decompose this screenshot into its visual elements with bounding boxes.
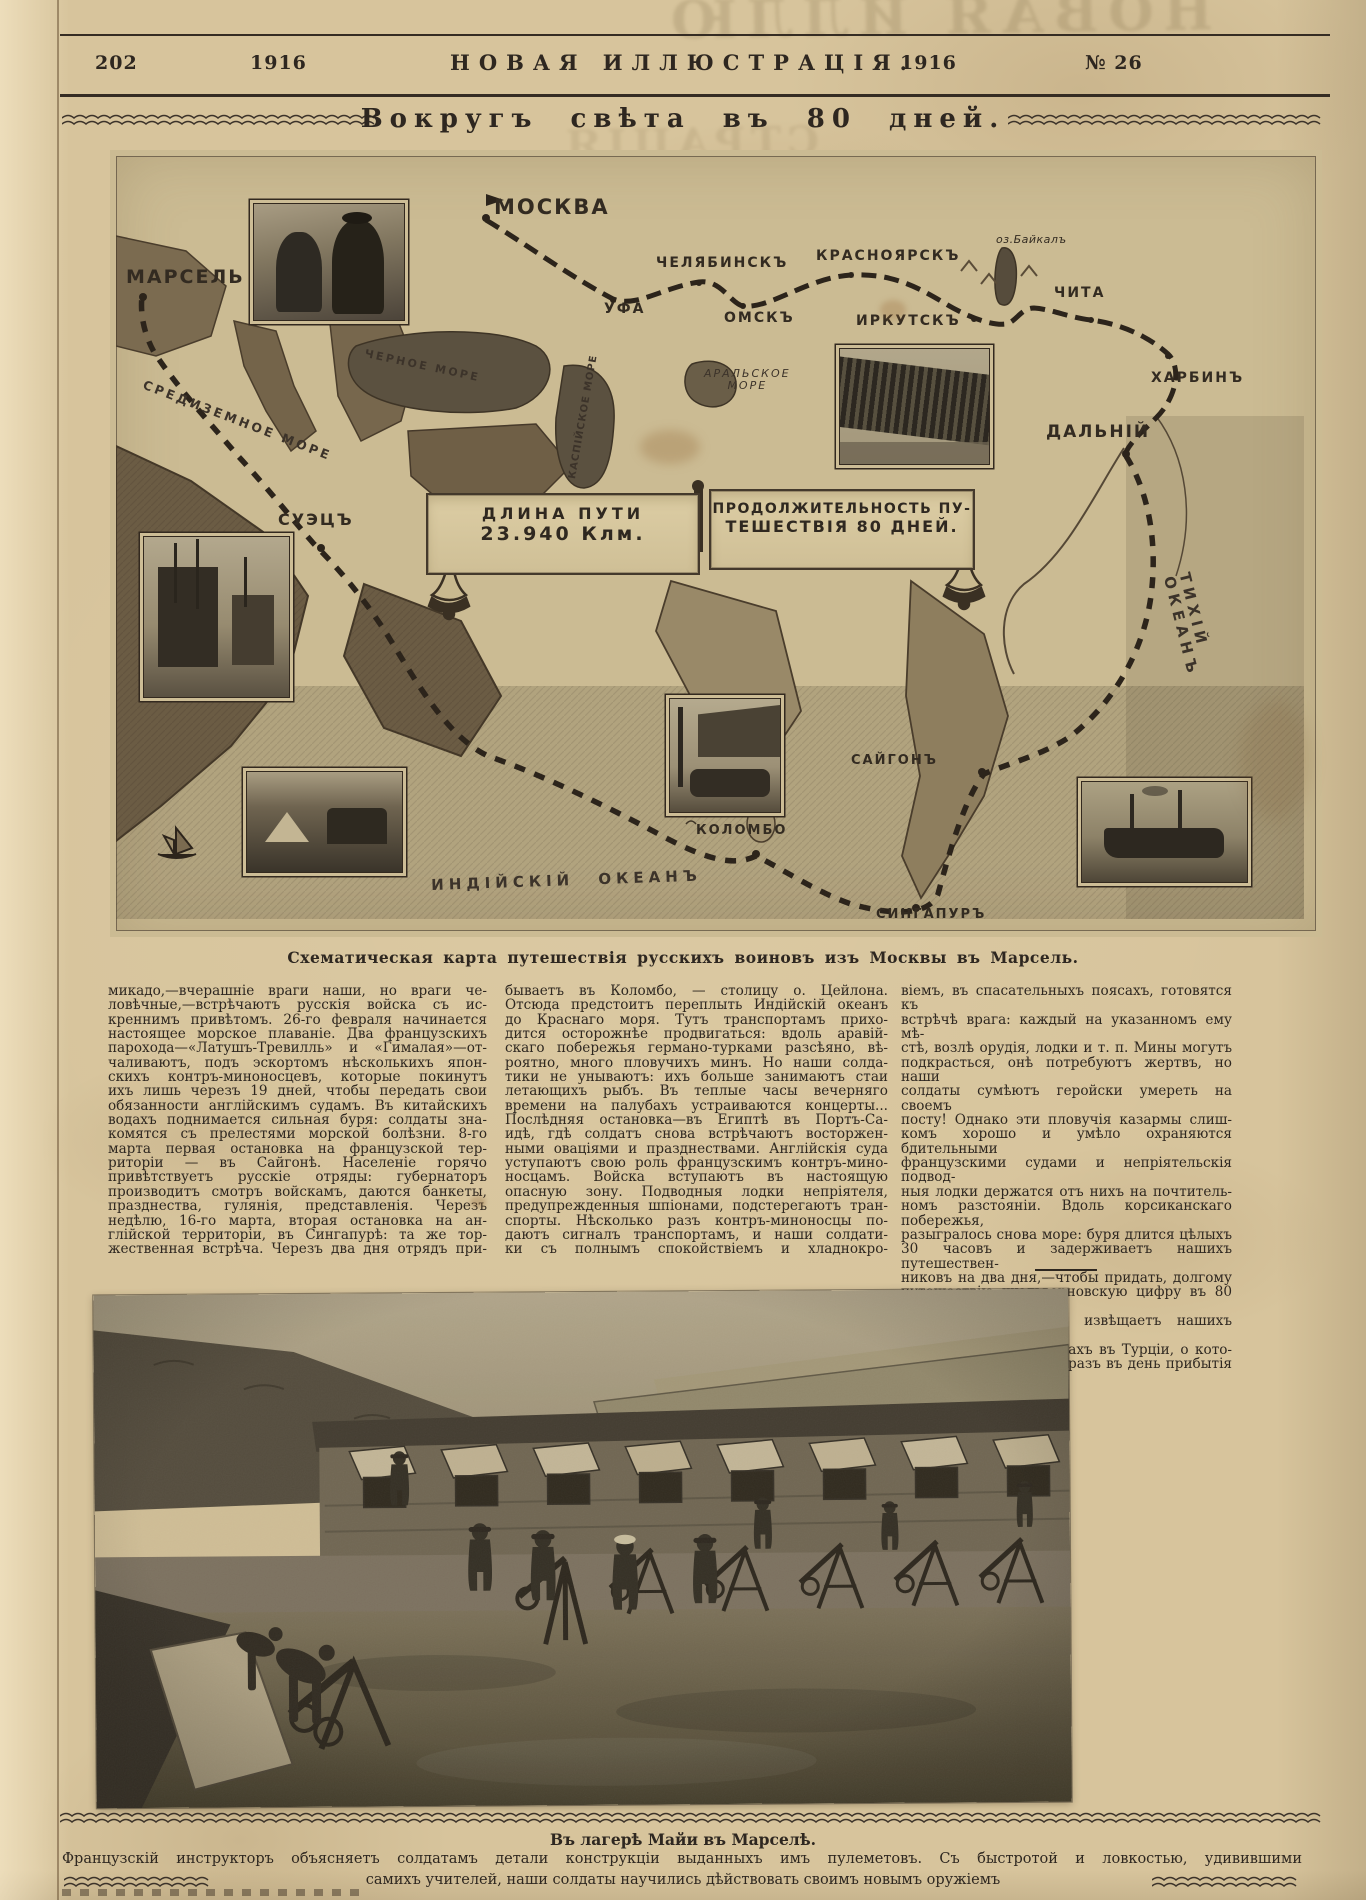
issue-number: № 26: [1085, 52, 1143, 74]
map-label-omsk: ОМСКЪ: [724, 311, 795, 326]
text-line: ными оваціями и празднествами. Англійскі…: [505, 1142, 888, 1156]
map-label-marseille: МАРСЕЛЬ: [126, 268, 245, 288]
photo-caption-line1: Французскій инструкторъ объясняетъ солда…: [62, 1851, 1302, 1867]
map-label-suez: СУЭЦЪ: [278, 512, 354, 529]
banner-length-value: 23.940 Клм.: [428, 523, 698, 545]
text-line: марта первая остановка на французской те…: [108, 1142, 487, 1156]
text-line: летающихъ рыбъ. Въ теплые часы вечерняго: [505, 1084, 888, 1098]
wavy-rule: [60, 1812, 1328, 1828]
text-line: чаливаютъ, подъ эскортомъ нѣсколькихъ яп…: [108, 1056, 487, 1070]
text-line: номъ разстояніи. Вдоль корсиканскаго поб…: [901, 1199, 1232, 1228]
map-label-moscow: МОСКВА: [494, 196, 610, 218]
map-label-krasnoyarsk: КРАСНОЯРСКЪ: [816, 249, 960, 264]
map-label-baikal: оз.Байкалъ: [996, 234, 1067, 246]
banner-route-length: ДЛИНА ПУТИ 23.940 Клм.: [426, 493, 700, 575]
text-line: віемъ, въ спасательныхъ поясахъ, готовят…: [901, 984, 1232, 1013]
camp-photo-artwork: [93, 1289, 1072, 1809]
text-line: встрѣчѣ врага: каждый на указанномъ ему …: [901, 1013, 1232, 1042]
wavy-ornament: [1008, 114, 1328, 130]
map-label-chelyabinsk: ЧЕЛЯБИНСКЪ: [656, 256, 788, 271]
text-line: спорты. Нѣсколько разъ контръ-миноносцы …: [505, 1214, 888, 1228]
map-caption: Схематическая карта путешествія русскихъ…: [0, 948, 1366, 967]
map-label-irkutsk: ИРКУТСКЪ: [856, 314, 961, 329]
text-line: ныя лодки держатся отъ нихъ на почтитель…: [901, 1185, 1232, 1199]
photo-caption-title: Въ лагерѣ Майи въ Марселѣ.: [0, 1830, 1366, 1849]
text-line: солдаты сумѣютъ геройски умереть на свое…: [901, 1084, 1232, 1113]
map-label-chita: ЧИТА: [1054, 286, 1105, 301]
text-line: посту! Однако эти пловучія казармы слиш-: [901, 1113, 1232, 1127]
text-line: ловѣчные,—встрѣчаютъ русскія войска съ и…: [108, 998, 487, 1012]
inset-photo-suez-ships: [143, 536, 290, 698]
text-line: тики не унываютъ: ихъ больше занимаютъ с…: [505, 1070, 888, 1084]
inset-photo-troop-column: [839, 348, 990, 465]
text-line: бываетъ въ Коломбо, — столицу о. Цейлона…: [505, 984, 888, 998]
text-line: французскими судами и непріятельскія под…: [901, 1156, 1232, 1185]
text-line: дится осторожнѣе продвигаться: вдоль ара…: [505, 1027, 888, 1041]
text-line: риторіи — въ Сайгонѣ. Населеніе горячо: [108, 1156, 487, 1170]
text-line: времени на палубахъ устраиваются концерт…: [505, 1099, 888, 1113]
bottom-ornament: [62, 1889, 362, 1896]
text-line: ихъ лишь черезъ 19 дней, чтобы передать …: [108, 1084, 487, 1098]
text-line: стѣ, возлѣ орудія, лодки и т. п. Мины мо…: [901, 1041, 1232, 1055]
text-line: водахъ поднимается сильная буря: солдаты…: [108, 1113, 487, 1127]
text-line: Послѣдняя остановка—въ Египтѣ въ Портъ-С…: [505, 1113, 888, 1127]
text-line: носцамъ. Войска вступаютъ въ настоящую: [505, 1170, 888, 1184]
inset-photo-officers: [253, 203, 405, 321]
text-line: парохода—«Латушъ-Тревилль» и «Гималая»—о…: [108, 1041, 487, 1055]
map-label-singapore: СИНГАПУРЪ: [876, 908, 986, 922]
text-line: разыгралось снова море: буря длится цѣлы…: [901, 1228, 1232, 1242]
text-line: комъ хорошо и умѣло охраняются бдительны…: [901, 1127, 1232, 1156]
wavy-ornament: [1152, 1876, 1302, 1890]
inset-photo-colombo-street: [669, 698, 781, 813]
text-line: обязанности англійскимъ судамъ. Въ китай…: [108, 1099, 487, 1113]
map-label-ufa: УФА: [604, 302, 646, 317]
map-label-dalny: ДАЛЬНІЙ: [1046, 424, 1150, 442]
text-line: идѣ, гдѣ солдатъ снова встрѣчаютъ востор…: [505, 1127, 888, 1141]
article-column-2: бываетъ въ Коломбо, — столицу о. Цейлона…: [505, 984, 888, 1257]
text-line: роятно, много пловучихъ минъ. Но наши со…: [505, 1056, 888, 1070]
text-line: комятся съ прелестями морской болѣзни. 8…: [108, 1127, 487, 1141]
map-label-colombo: КОЛОМБО: [696, 824, 787, 838]
text-line: производитъ смотръ войскамъ, даются банк…: [108, 1185, 487, 1199]
route-map: ДЛИНА ПУТИ 23.940 Клм. ПРОДОЛЖИТЕЛЬНОСТЬ…: [110, 150, 1322, 937]
map-label-aral-sea: АРАЛЬСКОЕ МОРЕ: [704, 368, 791, 391]
text-line: никовъ на два дня,—чтобы придать, долгом…: [901, 1271, 1232, 1285]
inset-photo-camp: [246, 771, 403, 873]
text-line: подкрасться, онѣ потребуютъ жертвъ, но н…: [901, 1056, 1232, 1085]
newspaper-page: { "palette":{"paper":"#d7c49c","ink":"#2…: [0, 0, 1366, 1900]
inset-photo-singapore-ship: [1081, 781, 1248, 883]
text-line: креннимъ привѣтомъ. 26-го февраля начина…: [108, 1013, 487, 1027]
text-line: уступаютъ свою роль французскимъ контръ-…: [505, 1156, 888, 1170]
year-right: 1916: [900, 52, 957, 74]
text-line: 30 часовъ и задерживаетъ нашихъ путешест…: [901, 1242, 1232, 1271]
banner-duration-line2: ТЕШЕСТВІЯ 80 ДНЕЙ.: [711, 517, 973, 536]
article-column-1: микадо,—вчерашніе враги наши, но враги ч…: [108, 984, 487, 1257]
text-line: настоящее морское плаваніе. Два французс…: [108, 1027, 487, 1041]
text-line: празднества, гулянія, представленія. Чер…: [108, 1199, 487, 1213]
text-line: ки съ полнымъ спокойствіемъ и хладнокро-: [505, 1242, 888, 1256]
text-line: жественная встрѣча. Черезъ два дня отряд…: [108, 1242, 487, 1256]
map-label-saigon: САЙГОНЪ: [851, 754, 938, 768]
banner-length-title: ДЛИНА ПУТИ: [428, 504, 698, 523]
text-line: даютъ сигналъ транспортамъ, и наши солда…: [505, 1228, 888, 1242]
text-line: Отсюда предстоитъ переплыть Индійскій ок…: [505, 998, 888, 1012]
showthrough-text: НОВАЯ ИЛЛЮ: [660, 0, 1214, 52]
article-end-dash: [1035, 1269, 1097, 1271]
header-top-rule: [60, 34, 1330, 36]
banner-trip-duration: ПРОДОЛЖИТЕЛЬНОСТЬ ПУ- ТЕШЕСТВІЯ 80 ДНЕЙ.: [709, 489, 975, 570]
text-line: недѣлю, 16-го марта, вторая остановка на…: [108, 1214, 487, 1228]
camp-photo: [93, 1289, 1072, 1809]
text-line: опасную зону. Подводныя лодки непріятеля…: [505, 1185, 888, 1199]
header-bottom-rule: [60, 94, 1330, 97]
banner-duration-line1: ПРОДОЛЖИТЕЛЬНОСТЬ ПУ-: [711, 501, 973, 517]
masthead: НОВАЯ ИЛЛЮСТРАЦІЯ.: [0, 50, 1366, 75]
text-line: предупрежденныя шпіонами, подстерегаютъ …: [505, 1199, 888, 1213]
map-label-harbin: ХАРБИНЪ: [1151, 371, 1244, 386]
text-line: скихъ контръ-миноносцевъ, которые покину…: [108, 1070, 487, 1084]
text-line: до Краснаго моря. Тутъ транспортамъ прих…: [505, 1013, 888, 1027]
text-line: скаго побережья германо-турками разсѣяно…: [505, 1041, 888, 1055]
text-line: глійской территоріи, въ Сингапурѣ: та же…: [108, 1228, 487, 1242]
text-line: микадо,—вчерашніе враги наши, но враги ч…: [108, 984, 487, 998]
text-line: привѣтствуетъ русскіе отряды: губернатор…: [108, 1170, 487, 1184]
